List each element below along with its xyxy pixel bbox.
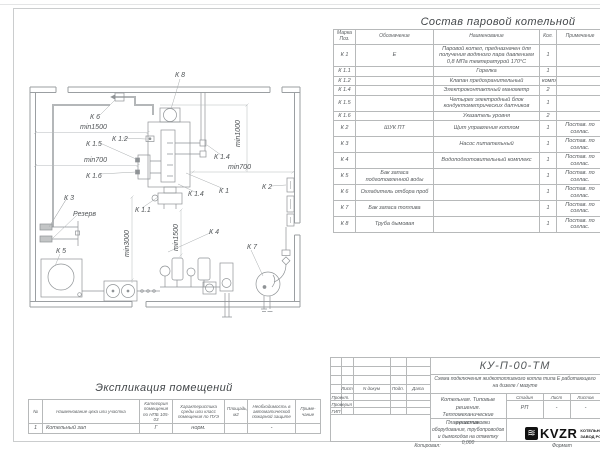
composition-title: Состав паровой котельной bbox=[363, 16, 600, 28]
cell-designation: Охладитель отбора проб bbox=[356, 185, 434, 201]
cell-note: Постав. по соглас. bbox=[557, 153, 600, 169]
plan-label: К 1.5 bbox=[86, 141, 102, 148]
plan-label: min3000 bbox=[124, 230, 131, 257]
composition-row: К 4Водоподготовительный комплекс1Постав.… bbox=[334, 153, 600, 169]
cell-note: Постав. по соглас. bbox=[557, 121, 600, 137]
plan-label: К 1.1 bbox=[135, 207, 151, 214]
cell-designation bbox=[356, 137, 434, 153]
company-name: КОТЕЛЬНЫЙ ЗАВОД РОССИИ bbox=[580, 428, 600, 438]
frame-top bbox=[13, 8, 600, 9]
chimney-base bbox=[160, 108, 180, 122]
cell-qty: 1 bbox=[540, 67, 557, 76]
explication-header-row: № Наименование цеха или участка Категори… bbox=[29, 400, 321, 424]
cell-designation: ШУК ПТ bbox=[356, 121, 434, 137]
cell-name: Четырех электродный блок кондуктометриче… bbox=[434, 95, 540, 111]
plan-label: К 1 bbox=[219, 188, 229, 195]
composition-table: Марка Поз. Обозначение Наименование Кол.… bbox=[333, 29, 600, 233]
cell-name: Насос питательный bbox=[434, 137, 540, 153]
plan-label: К 1.4 bbox=[214, 154, 230, 161]
plan-label: К 3 bbox=[64, 195, 74, 202]
explication-table-body: 1Котельный залГнорм.- bbox=[29, 424, 321, 433]
plan-labels: К 8К 6min1500К 1.2К 1.5min700К 1.6min100… bbox=[56, 72, 272, 257]
composition-row: К 1.2Клапан предохранительныйкомпл. bbox=[334, 76, 600, 85]
plan-label: min1500 bbox=[80, 124, 107, 131]
cell-mark: К 3 bbox=[334, 137, 356, 153]
drawing-sheet: К 8К 6min1500К 1.2К 1.5min700К 1.6min100… bbox=[0, 0, 600, 450]
cell-note: Постав. по соглас. bbox=[557, 169, 600, 185]
col-note: Примечание bbox=[557, 30, 600, 45]
boiler-furnace bbox=[161, 130, 175, 182]
cell-qty: 1 bbox=[540, 121, 557, 137]
cell-note: Постав. по соглас. bbox=[557, 200, 600, 216]
kvzr-logo-icon: ≋ bbox=[525, 427, 538, 440]
cell-qty: 1 bbox=[540, 153, 557, 169]
cell-category: Г bbox=[140, 424, 173, 433]
role-designer: Проект. bbox=[332, 395, 350, 400]
cell-mark: К 4 bbox=[334, 153, 356, 169]
cell-qty: 1 bbox=[540, 216, 557, 232]
cell-designation: Бак запаса подготовленной воды bbox=[356, 169, 434, 185]
floor-plan: К 8К 6min1500К 1.2К 1.5min700К 1.6min100… bbox=[20, 55, 320, 325]
plan-label: К 5 bbox=[56, 248, 66, 255]
title-block: КУ-П-00-ТМ Схема подключения жидкотоплив… bbox=[330, 357, 600, 441]
plan-label: К 1.6 bbox=[86, 173, 102, 180]
plan-label: min700 bbox=[228, 164, 251, 171]
filter-a bbox=[172, 258, 183, 280]
boiler-body bbox=[148, 122, 190, 187]
composition-row: К 6Охладитель отбора проб1Постав. по сог… bbox=[334, 185, 600, 201]
col-date-label: Дата bbox=[406, 386, 430, 391]
composition-table-body: К 1ЕПаровой котел, предназначен для полу… bbox=[334, 44, 600, 232]
cell-designation bbox=[356, 95, 434, 111]
cell-name: Электроконтактный манометр bbox=[434, 86, 540, 95]
cell-designation bbox=[356, 86, 434, 95]
cell-name bbox=[434, 200, 540, 216]
cell-note bbox=[557, 86, 600, 95]
cell-num: 1 bbox=[29, 424, 43, 433]
plan-label: К 7 bbox=[247, 244, 258, 251]
cell-note: Постав. по соглас. bbox=[557, 137, 600, 153]
sheet-edge-line bbox=[0, 4, 600, 5]
company-logo: ≋ KVZR КОТЕЛЬНЫЙ ЗАВОД РОССИИ bbox=[525, 426, 600, 441]
composition-row: К 1.5Четырех электродный блок кондуктоме… bbox=[334, 95, 600, 111]
pump-k3-reserve bbox=[40, 236, 52, 242]
plan-label: К 1.4 bbox=[188, 191, 204, 198]
cell-note bbox=[557, 44, 600, 66]
sheets-value: - bbox=[570, 405, 600, 411]
cell-mark: К 1 bbox=[334, 44, 356, 66]
cell-designation bbox=[356, 67, 434, 76]
cell-designation bbox=[356, 76, 434, 85]
col-area: Площадь, м2 bbox=[225, 400, 248, 424]
cell-note: Постав. по соглас. bbox=[557, 216, 600, 232]
col-mark: Марка Поз. bbox=[334, 30, 356, 45]
plan-label: Резерв bbox=[73, 211, 96, 218]
cell-qty: 1 bbox=[540, 95, 557, 111]
col-doc-label: N докум bbox=[353, 386, 390, 391]
cell-area bbox=[225, 424, 248, 433]
col-category: Категория помещения по НПБ 105-03 bbox=[140, 400, 173, 424]
composition-row: К 8Труба дымовая1Постав. по соглас. bbox=[334, 216, 600, 232]
col-fire: Необходимость в автоматической пожарной … bbox=[248, 400, 296, 424]
manometer-k14-b bbox=[200, 151, 206, 157]
col-room-name: Наименование цеха или участка bbox=[43, 400, 140, 424]
composition-row: К 1.1Горелка1 bbox=[334, 67, 600, 76]
composition-row: К 3Насос питательный1Постав. по соглас. bbox=[334, 137, 600, 153]
frame-left bbox=[13, 8, 14, 442]
plan-label: К 4 bbox=[209, 229, 219, 236]
composition-row: К 1ЕПаровой котел, предназначен для полу… bbox=[334, 44, 600, 66]
chimney-k8 bbox=[164, 109, 177, 122]
sheets-label: Листов bbox=[570, 395, 600, 400]
col-num: № bbox=[29, 400, 43, 424]
cell-note bbox=[557, 76, 600, 85]
col-sign-label: Подп. bbox=[390, 386, 406, 391]
cell-mark: К 1.4 bbox=[334, 86, 356, 95]
cell-qty: 1 bbox=[540, 185, 557, 201]
cell-qty: 2 bbox=[540, 111, 557, 120]
cell-mark: К 1.5 bbox=[334, 95, 356, 111]
cell-designation bbox=[356, 111, 434, 120]
tank-k7 bbox=[256, 272, 280, 296]
equipment bbox=[40, 93, 294, 318]
plan-label: К 1.2 bbox=[112, 136, 128, 143]
cell-note bbox=[557, 95, 600, 111]
doc-number: КУ-П-00-ТМ bbox=[430, 358, 600, 374]
col-room-note: Приме- чание bbox=[296, 400, 321, 424]
cell-mark: К 6 bbox=[334, 185, 356, 201]
stage-label: Стадия bbox=[506, 395, 543, 400]
col-name: Наименование bbox=[434, 30, 540, 45]
sheet-value: - bbox=[543, 405, 570, 411]
plan-label: min1500 bbox=[173, 224, 180, 251]
cell-note bbox=[296, 424, 321, 433]
cell-mark: К 2 bbox=[334, 121, 356, 137]
cell-fire: - bbox=[248, 424, 296, 433]
plan-label: min700 bbox=[84, 157, 107, 164]
composition-row: К 7Бак запаса топлива1Постав. по соглас. bbox=[334, 200, 600, 216]
composition-header-row: Марка Поз. Обозначение Наименование Кол.… bbox=[334, 30, 600, 45]
format-label: Формат bbox=[552, 443, 572, 449]
cell-name: Указатель уровня bbox=[434, 111, 540, 120]
role-checker: Проверил bbox=[332, 402, 353, 407]
role-gip: ГИП bbox=[332, 409, 341, 414]
plan-label: К 8 bbox=[175, 72, 185, 79]
cell-designation bbox=[356, 153, 434, 169]
cell-qty: 1 bbox=[540, 137, 557, 153]
cell-name bbox=[434, 216, 540, 232]
composition-row: К 2ШУК ПТЩит управления котлом1Постав. п… bbox=[334, 121, 600, 137]
cell-name bbox=[434, 185, 540, 201]
cell-designation: Е bbox=[356, 44, 434, 66]
cell-mark: К 8 bbox=[334, 216, 356, 232]
plan-label: min1000 bbox=[235, 120, 242, 147]
doc-description: Схема подключения жидкотопливного котла … bbox=[431, 376, 599, 390]
cell-mark: К 1.1 bbox=[334, 67, 356, 76]
cell-mark: К 1.2 bbox=[334, 76, 356, 85]
explication-title: Экспликация помещений bbox=[28, 382, 300, 394]
composition-row: К 5Бак запаса подготовленной воды1Постав… bbox=[334, 169, 600, 185]
cell-designation: Бак запаса топлива bbox=[356, 200, 434, 216]
cell-qty: 1 bbox=[540, 44, 557, 66]
filter-b bbox=[198, 258, 210, 280]
plan-label: К 2 bbox=[262, 184, 272, 191]
cell-name: Клапан предохранительный bbox=[434, 76, 540, 85]
col-designation: Обозначение bbox=[356, 30, 434, 45]
cell-note bbox=[557, 111, 600, 120]
cell-name: Котельный зал bbox=[43, 424, 140, 433]
col-qty: Кол. bbox=[540, 30, 557, 45]
cell-mark: К 1.6 bbox=[334, 111, 356, 120]
copied-label: Копировал: bbox=[405, 443, 450, 449]
cell-name bbox=[434, 169, 540, 185]
cell-note bbox=[557, 67, 600, 76]
cell-env: норм. bbox=[173, 424, 225, 433]
plan-label: К 6 bbox=[90, 114, 100, 121]
cell-name: Горелка bbox=[434, 67, 540, 76]
burner-k11 bbox=[158, 193, 182, 204]
explication-table: № Наименование цеха или участка Категори… bbox=[28, 399, 321, 434]
cell-qty: компл. bbox=[540, 76, 557, 85]
cell-name: Паровой котел, предназначен для получени… bbox=[434, 44, 540, 66]
composition-row: К 1.6Указатель уровня2 bbox=[334, 111, 600, 120]
stage-value: РП bbox=[506, 405, 543, 411]
col-sheet-label: Лист bbox=[341, 386, 353, 391]
cell-designation: Труба дымовая bbox=[356, 216, 434, 232]
cell-mark: К 7 bbox=[334, 200, 356, 216]
cell-name: Водоподготовительный комплекс bbox=[434, 153, 540, 169]
cell-mark: К 5 bbox=[334, 169, 356, 185]
col-env: Характеристика среды или класс помещения… bbox=[173, 400, 225, 424]
cell-qty: 1 bbox=[540, 169, 557, 185]
explication-row: 1Котельный залГнорм.- bbox=[29, 424, 321, 433]
kvzr-logo-text: KVZR bbox=[540, 426, 577, 441]
tank-k5 bbox=[41, 259, 82, 297]
cell-name: Щит управления котлом bbox=[434, 121, 540, 137]
cell-qty: 2 bbox=[540, 86, 557, 95]
cell-qty: 1 bbox=[540, 200, 557, 216]
composition-row: К 1.4Электроконтактный манометр2 bbox=[334, 86, 600, 95]
cell-note: Постав. по соглас. bbox=[557, 185, 600, 201]
sheet-label: Лист bbox=[543, 395, 570, 400]
